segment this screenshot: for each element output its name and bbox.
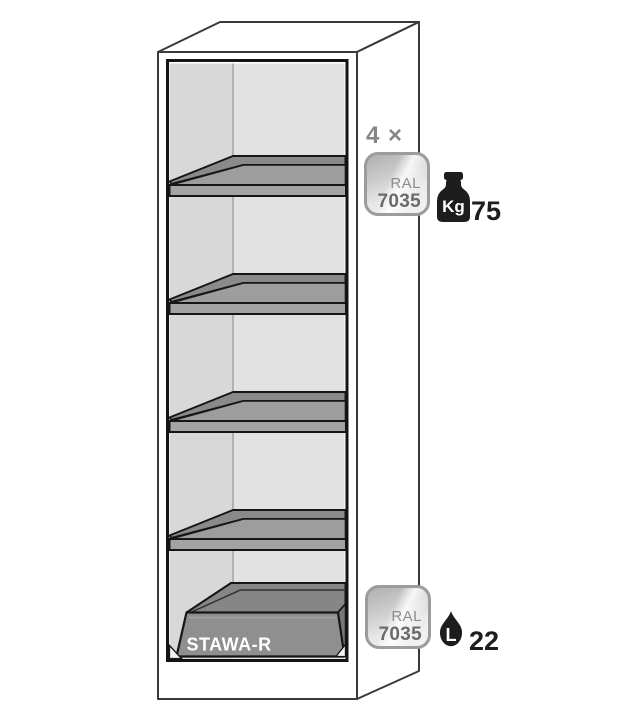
- cabinet-illustration: STAWA-R: [0, 0, 629, 718]
- shelf-4-front-strip: [170, 539, 347, 550]
- ral-7035-badge-shelves: RAL 7035: [364, 152, 430, 216]
- weight-kg-icon: Kg: [437, 172, 470, 222]
- shelf-1-front-strip: [170, 185, 347, 196]
- shelf-3-front-strip: [170, 421, 347, 432]
- sump-volume-value: 22: [469, 628, 499, 655]
- shelf-2-front-strip: [170, 303, 347, 314]
- interior-back-wall: [233, 64, 345, 660]
- cabinet-interior: [170, 64, 345, 660]
- liquid-drop-icon: L: [439, 611, 463, 649]
- ral-code: 7035: [379, 625, 422, 644]
- weight-unit-label: Kg: [442, 197, 465, 216]
- safety-cabinet-diagram: STAWA-R 4 × RAL 7035 Kg 75 RAL 7035 L 22: [0, 0, 629, 718]
- ral-label: RAL: [379, 609, 422, 624]
- sump-tray-label: STAWA-R: [187, 635, 272, 655]
- ral-badge-text: RAL 7035: [378, 176, 421, 211]
- shelf-load-value: 75: [471, 198, 501, 225]
- volume-unit-label: L: [445, 625, 456, 645]
- shelf-quantity-label: 4 ×: [366, 124, 403, 148]
- ral-code: 7035: [378, 192, 421, 211]
- ral-badge-text: RAL 7035: [379, 609, 422, 644]
- interior-left-wall: [170, 64, 234, 660]
- weight-icon-handle: [444, 172, 463, 180]
- ral-label: RAL: [378, 176, 421, 191]
- ral-7035-badge-sump: RAL 7035: [365, 585, 431, 649]
